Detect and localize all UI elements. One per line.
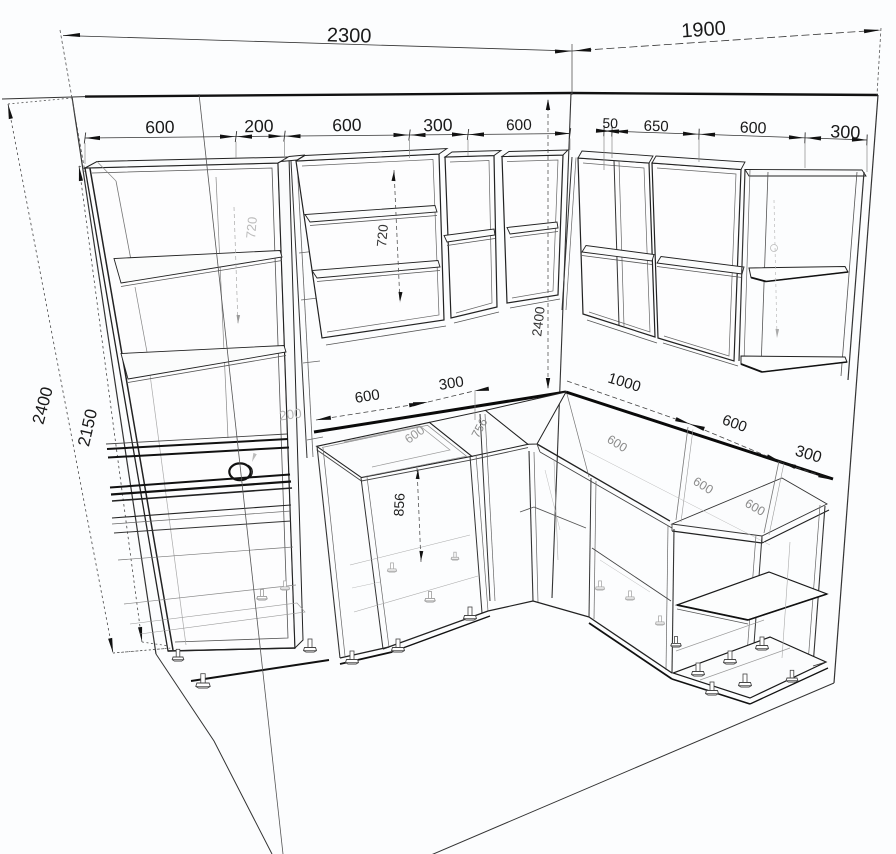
svg-text:50: 50 <box>602 115 618 132</box>
svg-text:600: 600 <box>740 120 767 138</box>
svg-text:720: 720 <box>243 216 260 239</box>
svg-text:300: 300 <box>830 121 861 143</box>
svg-text:720: 720 <box>374 224 391 248</box>
svg-text:650: 650 <box>643 118 669 136</box>
svg-text:600: 600 <box>332 115 362 136</box>
svg-text:300: 300 <box>423 115 453 136</box>
svg-text:2300: 2300 <box>327 24 372 47</box>
svg-text:1900: 1900 <box>681 17 727 42</box>
svg-text:856: 856 <box>390 492 407 516</box>
svg-text:600: 600 <box>506 117 533 134</box>
svg-text:200: 200 <box>278 406 302 424</box>
svg-text:600: 600 <box>145 117 175 138</box>
svg-text:200: 200 <box>244 116 274 137</box>
